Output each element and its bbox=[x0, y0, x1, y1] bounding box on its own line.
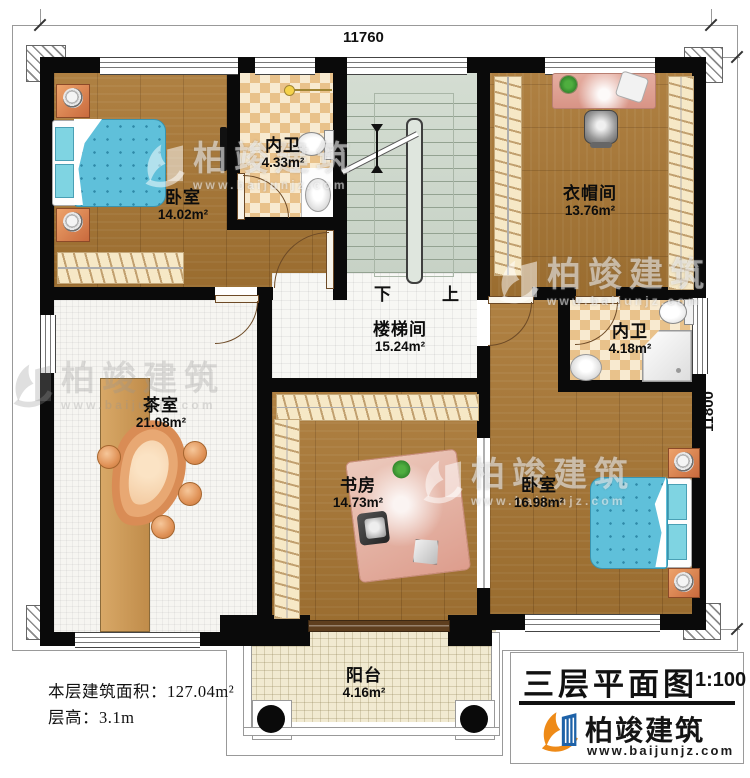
tv-icon bbox=[220, 127, 227, 171]
shower-drain-icon bbox=[676, 368, 681, 373]
room-label-bath-2: 内卫 4.18m² bbox=[609, 322, 652, 356]
desk-area bbox=[345, 449, 469, 582]
wall-bath1-stairs bbox=[333, 57, 347, 300]
tea-stool bbox=[183, 441, 207, 465]
stair-down-label: 下 bbox=[374, 280, 391, 305]
towel-bar-icon bbox=[294, 89, 332, 91]
stair-arrow-up-icon bbox=[371, 164, 383, 173]
room-name: 内卫 bbox=[262, 136, 305, 155]
room-label-stair-hall: 楼梯间 15.24m² bbox=[373, 320, 427, 354]
nightstand bbox=[56, 208, 90, 242]
wall-tearoom-right bbox=[257, 300, 272, 632]
window-bedroom-2 bbox=[525, 614, 660, 632]
floor-area-value: 127.04m² bbox=[167, 682, 234, 701]
wardrobe-right bbox=[668, 76, 694, 290]
sheet-border-right bbox=[737, 25, 738, 651]
window-stairwell bbox=[347, 57, 467, 75]
room-label-balcony: 阳台 4.16m² bbox=[343, 666, 386, 700]
room-name: 楼梯间 bbox=[373, 320, 427, 339]
nightstand bbox=[668, 448, 700, 478]
window-tearoom-left bbox=[40, 315, 56, 373]
lamp-icon bbox=[63, 212, 83, 232]
lamp-icon bbox=[63, 88, 83, 108]
bed-pillow bbox=[668, 524, 687, 560]
stair-up-label: 上 bbox=[442, 280, 459, 305]
bookshelf-left bbox=[274, 419, 300, 619]
room-label-study: 书房 14.73m² bbox=[333, 476, 383, 510]
tea-stool bbox=[151, 515, 175, 539]
toilet-icon bbox=[659, 300, 687, 324]
wall-vestibule-top bbox=[532, 287, 570, 300]
sheet-border-bottom-right bbox=[502, 650, 738, 651]
bed-quilt bbox=[590, 477, 668, 569]
wardrobe bbox=[57, 252, 184, 284]
room-name: 茶室 bbox=[136, 396, 186, 415]
plan-scale: 1:100 bbox=[695, 669, 746, 692]
opening-study-bedroom2 bbox=[483, 438, 485, 588]
room-area: 14.73m² bbox=[333, 495, 383, 510]
stair-arrow-down-icon bbox=[371, 124, 383, 133]
room-label-bath-1: 内卫 4.33m² bbox=[262, 136, 305, 170]
window-bath-2 bbox=[692, 298, 708, 374]
sheet-border-notch-right bbox=[502, 650, 503, 756]
stair-handrail bbox=[406, 118, 423, 284]
brand-url: www.baijunjz.com bbox=[587, 743, 734, 758]
floor-height-value: 3.1m bbox=[99, 708, 134, 727]
monitor-screen bbox=[364, 517, 386, 539]
lamp-icon bbox=[674, 572, 694, 592]
bed-pillow bbox=[55, 127, 74, 161]
nightstand bbox=[56, 84, 90, 118]
room-name: 书房 bbox=[333, 476, 383, 495]
room-area: 16.98m² bbox=[514, 495, 564, 510]
sheet-border-notch-left bbox=[226, 650, 227, 756]
sink-icon bbox=[570, 354, 602, 381]
room-label-tearoom: 茶室 21.08m² bbox=[136, 396, 186, 430]
room-area: 4.16m² bbox=[343, 685, 386, 700]
plan-title: 三层平面图 bbox=[523, 659, 698, 704]
bed-pillow bbox=[55, 164, 74, 198]
room-name: 衣帽间 bbox=[563, 184, 617, 203]
dressing-stool-base bbox=[590, 142, 612, 148]
lamp-icon bbox=[674, 452, 694, 472]
room-name: 卧室 bbox=[514, 476, 564, 495]
tea-stool bbox=[97, 445, 121, 469]
floor-area-label: 本层建筑面积： bbox=[48, 682, 167, 701]
wall-study-bedroom2-upper bbox=[477, 346, 490, 438]
room-name: 内卫 bbox=[609, 322, 652, 341]
balcony-railing-bottom bbox=[243, 727, 500, 736]
title-underline bbox=[519, 701, 735, 705]
floor-area-note: 本层建筑面积：127.04m² bbox=[48, 678, 234, 702]
wardrobe-left bbox=[494, 76, 522, 276]
wall-study-bedroom2-lower bbox=[477, 588, 490, 632]
dressing-stool bbox=[584, 110, 618, 144]
brand-logo-icon bbox=[535, 709, 581, 757]
window-bedroom-1 bbox=[100, 57, 238, 75]
floor-height-note: 层高：3.1m bbox=[48, 704, 134, 728]
room-label-cloakroom: 衣帽间 13.76m² bbox=[563, 184, 617, 218]
room-name: 卧室 bbox=[158, 188, 208, 207]
nightstand bbox=[668, 568, 700, 598]
balcony-sliding-door bbox=[308, 620, 450, 632]
balcony-column bbox=[460, 705, 488, 733]
sheet-border-bottom-mid bbox=[226, 755, 503, 756]
room-area: 4.18m² bbox=[609, 341, 652, 356]
sheet-border-left bbox=[12, 25, 13, 651]
window-tearoom-bottom bbox=[75, 632, 200, 648]
room-area: 4.33m² bbox=[262, 155, 305, 170]
sheet-border-top bbox=[12, 25, 738, 26]
balcony-column bbox=[257, 705, 285, 733]
bookshelf-top bbox=[276, 394, 479, 421]
title-block: 三层平面图 1:100 柏竣建筑 www.baijunjz.com bbox=[510, 652, 744, 764]
room-name: 阳台 bbox=[343, 666, 386, 685]
bed-pillow bbox=[668, 484, 687, 520]
sink-icon bbox=[305, 178, 331, 212]
floor-plan-sheet: 11760 11800 bbox=[0, 0, 750, 778]
wall-cloakroom-left bbox=[477, 57, 490, 300]
room-area: 15.24m² bbox=[373, 339, 427, 354]
wall-hall-study bbox=[257, 378, 490, 392]
wall-tearoom-top-stub bbox=[257, 287, 273, 300]
room-area: 21.08m² bbox=[136, 415, 186, 430]
sheet-border-bottom-left bbox=[12, 650, 226, 651]
plant-icon bbox=[560, 76, 577, 93]
wall-tearoom-top bbox=[40, 287, 215, 300]
tea-stool bbox=[178, 482, 202, 506]
dim-top-label: 11760 bbox=[343, 29, 384, 46]
room-label-bedroom-2: 卧室 16.98m² bbox=[514, 476, 564, 510]
room-label-bedroom-1: 卧室 14.02m² bbox=[158, 188, 208, 222]
window-bath-1 bbox=[255, 57, 315, 75]
room-area: 14.02m² bbox=[158, 207, 208, 222]
wall-bath2-left bbox=[558, 300, 570, 392]
floor-height-label: 层高： bbox=[48, 708, 99, 727]
balcony-railing-left bbox=[243, 632, 252, 732]
room-area: 13.76m² bbox=[563, 203, 617, 218]
